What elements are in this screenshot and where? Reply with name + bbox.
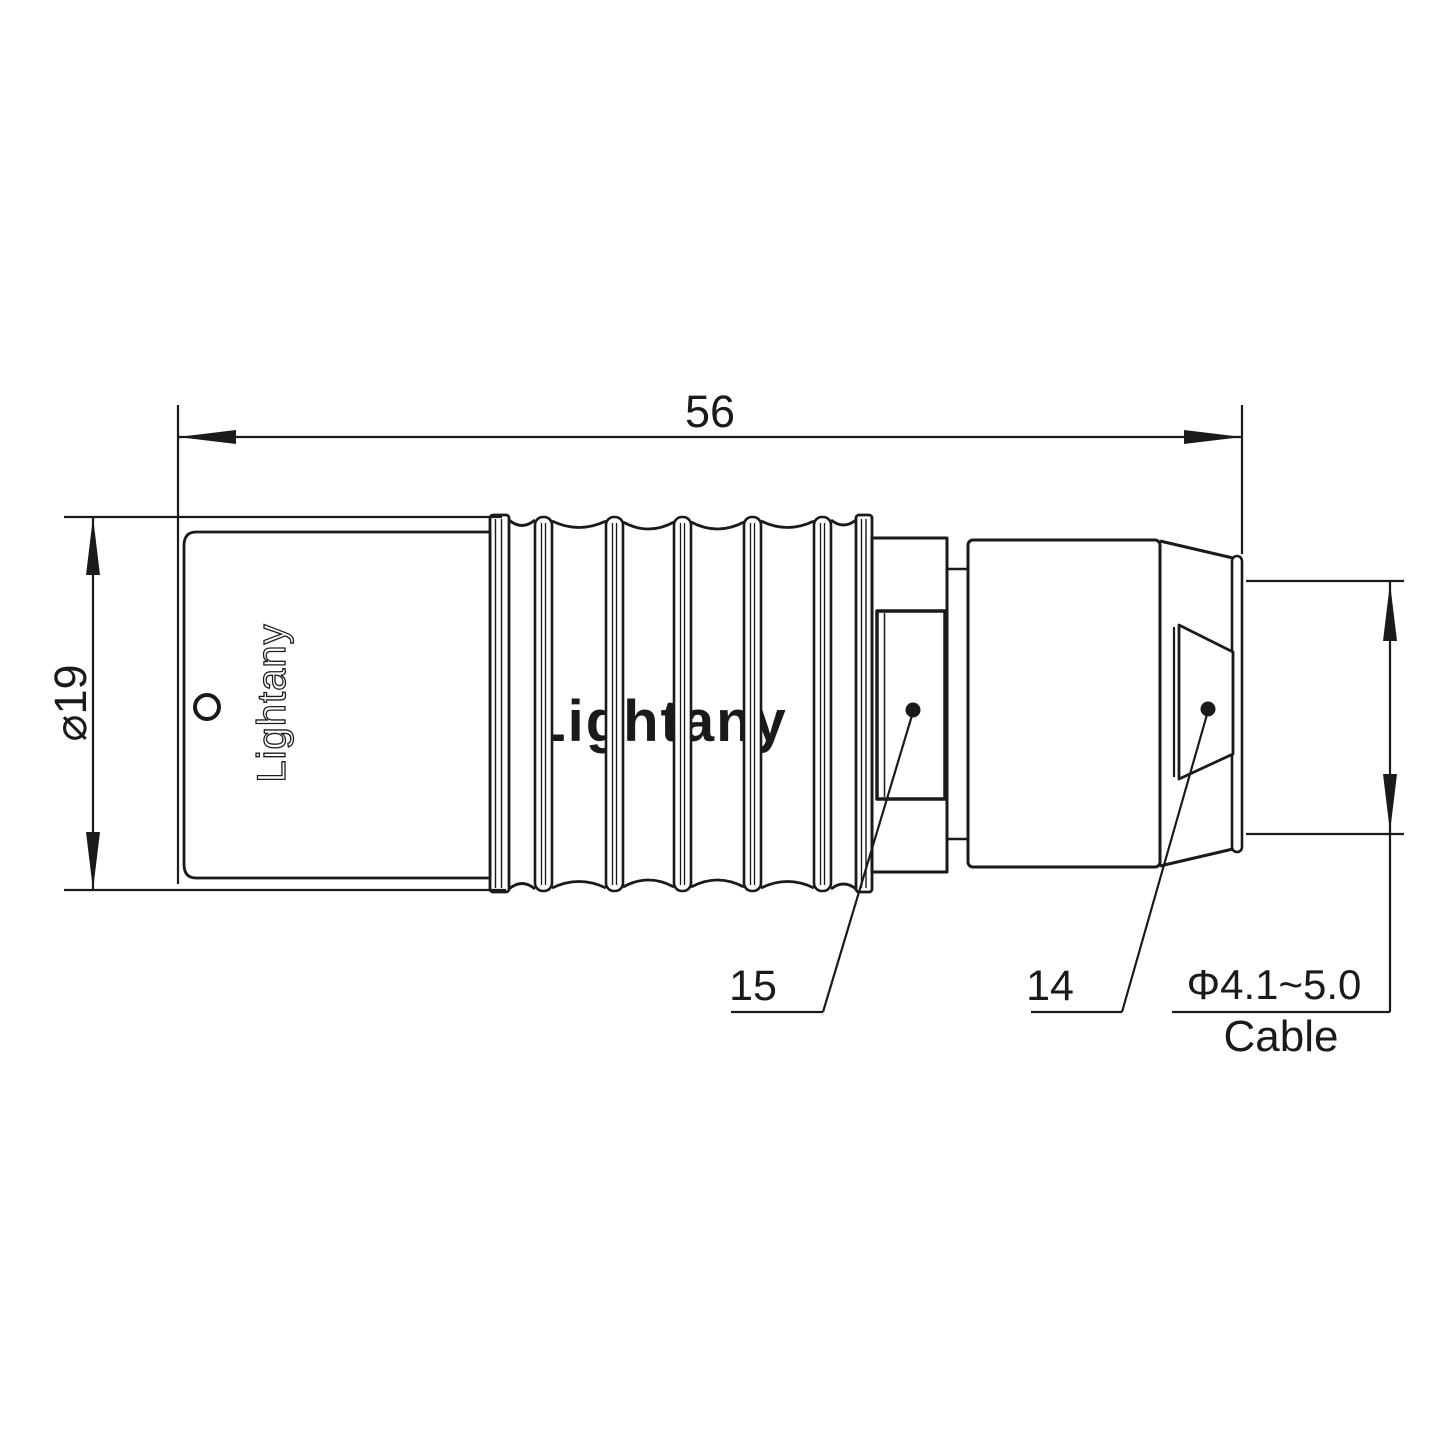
dim19-arrow-bottom (86, 832, 100, 890)
dimcable-arrow-top (1383, 583, 1397, 641)
neck-lines (947, 569, 968, 839)
coupling-collar-front (490, 515, 509, 892)
dim19-arrow-top (86, 517, 100, 575)
grip-rib-1 (535, 517, 552, 891)
label15-text: 15 (729, 962, 777, 1010)
grip-rib-3 (674, 517, 691, 891)
brand-engraving: Lightany (250, 623, 294, 782)
cable-range-text: Φ4.1~5.0 (1187, 961, 1362, 1008)
label14-target-dot (1201, 702, 1216, 717)
connector-technical-drawing: Lightany (0, 0, 1440, 1440)
grip-rib-5 (814, 517, 831, 891)
dimcable-arrow-bottom (1383, 774, 1397, 832)
back-shell (968, 540, 1242, 867)
front-shell (178, 405, 490, 884)
shell-pilot-hole (195, 695, 219, 719)
grip-rib-4 (744, 517, 761, 891)
dim56-arrow-left (178, 430, 236, 444)
grip-rib-2 (606, 517, 623, 891)
label15-target-dot (906, 703, 921, 718)
dim19-value: ⌀19 (45, 664, 96, 741)
cable-word-text: Cable (1224, 1012, 1339, 1061)
label14-text: 14 (1026, 962, 1074, 1010)
connector-outline (178, 405, 1242, 892)
dim56-value: 56 (685, 386, 735, 437)
dim56-arrow-right (1184, 430, 1242, 444)
coupling-collar-rear (856, 515, 872, 892)
drawing-sheet: Lightany (0, 0, 1440, 1440)
